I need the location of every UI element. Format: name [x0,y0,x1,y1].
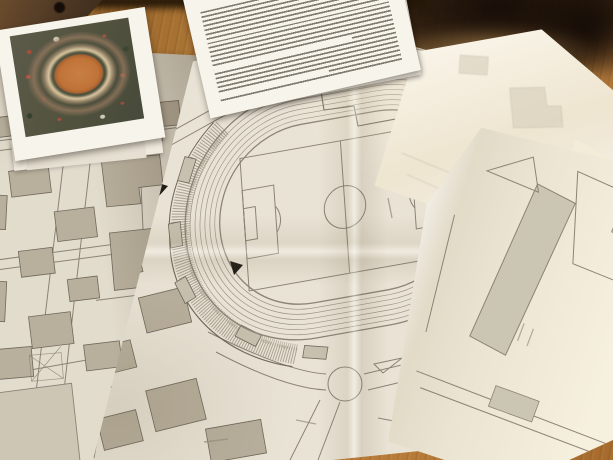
aerial-photo-print [0,7,165,161]
aerial-stadium-photo [10,18,144,138]
photo-of-plans-on-table [0,0,613,460]
cam-lock-hole [54,2,65,13]
